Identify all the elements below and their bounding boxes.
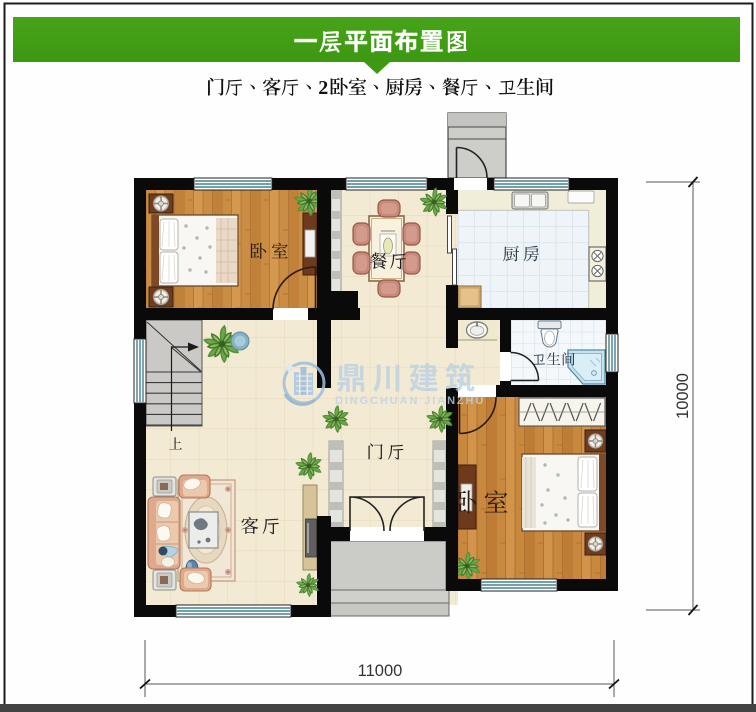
svg-text:2: 2: [318, 77, 328, 99]
svg-text:10000: 10000: [674, 373, 692, 419]
svg-text:DINGCHUAN JIANZHU: DINGCHUAN JIANZHU: [335, 395, 485, 407]
svg-text:11000: 11000: [358, 662, 403, 680]
